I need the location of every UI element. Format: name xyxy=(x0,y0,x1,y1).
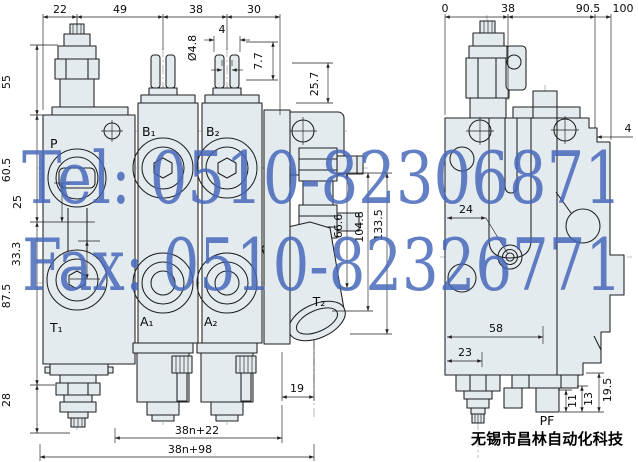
dim-label-90-5: 90.5 xyxy=(576,2,601,15)
dim-label-55: 55 xyxy=(0,75,13,89)
watermark-fax: Fax: 0510-82326771 xyxy=(22,223,622,307)
dim-label-7-7: 7.7 xyxy=(252,52,265,70)
port-label-a1: A₁ xyxy=(140,314,154,329)
side-relief-hex xyxy=(466,58,509,98)
side-bottom-stack xyxy=(456,375,500,423)
dim-label-87-5: 87.5 xyxy=(0,284,13,309)
spool-clevis-1 xyxy=(151,55,160,88)
dim-label-19-5: 19.5 xyxy=(601,378,614,403)
dim-label-38n22: 38n+22 xyxy=(175,424,219,437)
dim-label-60-5: 60.5 xyxy=(0,158,13,183)
side-relief-locknut xyxy=(473,33,504,46)
side-relief-screw xyxy=(480,21,495,33)
port-label-t1: T₁ xyxy=(49,320,63,335)
pf-port-fitting xyxy=(536,388,559,412)
dim-label-28: 28 xyxy=(0,393,13,407)
dim-label-station-38: 38 xyxy=(501,2,515,15)
dim-label-38: 38 xyxy=(189,3,203,16)
port-label-pf: PF xyxy=(540,413,555,428)
dim-label-step-4: 4 xyxy=(625,122,632,135)
inlet-drain-stack xyxy=(45,364,113,427)
side-relief-bracket xyxy=(506,46,526,90)
dim-label-dia-4-8: Ø4.8 xyxy=(186,35,199,61)
relief-valve-hex xyxy=(55,59,99,79)
side-view-valve-body xyxy=(445,21,624,423)
spool-end-cap-1 xyxy=(133,343,193,421)
dim-label-4: 4 xyxy=(219,23,226,36)
spool-clevis-2 xyxy=(215,55,224,88)
dim-label-58: 58 xyxy=(489,322,503,335)
company-name: 无锡市昌林自动化科技 xyxy=(470,430,624,448)
valve-drawing-svg: 22 49 38 30 55 60.5 25 33.3 87.5 28 Ø4.8… xyxy=(0,0,638,462)
dim-label-30: 30 xyxy=(247,3,261,16)
relief-valve-locknut xyxy=(64,34,90,46)
dim-label-25-7: 25.7 xyxy=(308,72,321,97)
dim-label-22: 22 xyxy=(53,3,67,16)
dim-label-11: 11 xyxy=(566,394,579,408)
dim-label-23: 23 xyxy=(458,346,472,359)
port-label-a2: A₂ xyxy=(204,314,218,329)
dim-label-49: 49 xyxy=(113,3,127,16)
dim-label-13: 13 xyxy=(582,392,595,406)
spool-end-cap-2 xyxy=(197,343,257,421)
side-secondary-hex xyxy=(533,91,557,107)
technical-drawing-page: 22 49 38 30 55 60.5 25 33.3 87.5 28 Ø4.8… xyxy=(0,0,638,462)
watermark-tel: Tel: 0510-82306871 xyxy=(22,136,622,220)
dim-label-19: 19 xyxy=(290,382,304,395)
dim-label-100: 100 xyxy=(613,2,634,15)
dim-label-38n98: 38n+98 xyxy=(168,443,212,456)
dim-label-0: 0 xyxy=(442,2,449,15)
